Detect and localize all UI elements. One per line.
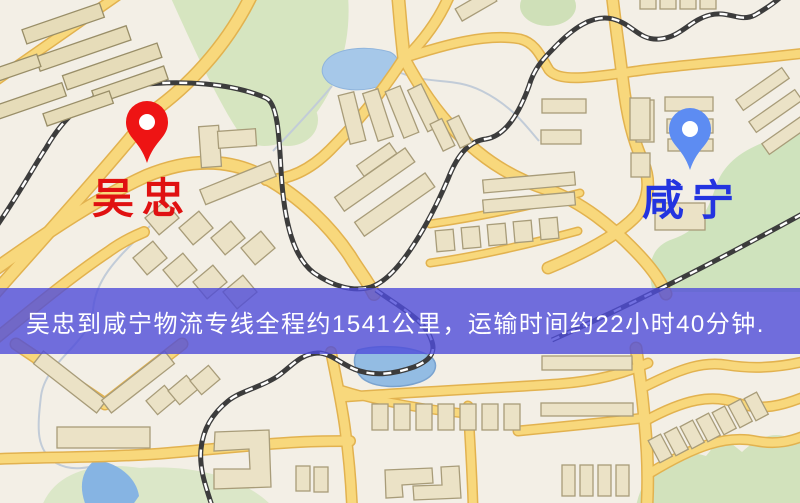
map-screenshot: 吴忠 咸宁 吴忠到咸宁物流专线全程约1541公里，运输时间约22小时40分钟. (0, 0, 800, 503)
route-banner: 吴忠到咸宁物流专线全程约1541公里，运输时间约22小时40分钟. (0, 288, 800, 354)
origin-city-label: 吴忠 (92, 178, 192, 220)
map-canvas[interactable] (0, 0, 800, 503)
origin-pin-hole (139, 114, 155, 130)
destination-city-label: 咸宁 (642, 180, 742, 222)
route-banner-text: 吴忠到咸宁物流专线全程约1541公里，运输时间约22小时40分钟. (26, 304, 765, 339)
destination-pin-hole (682, 121, 698, 137)
